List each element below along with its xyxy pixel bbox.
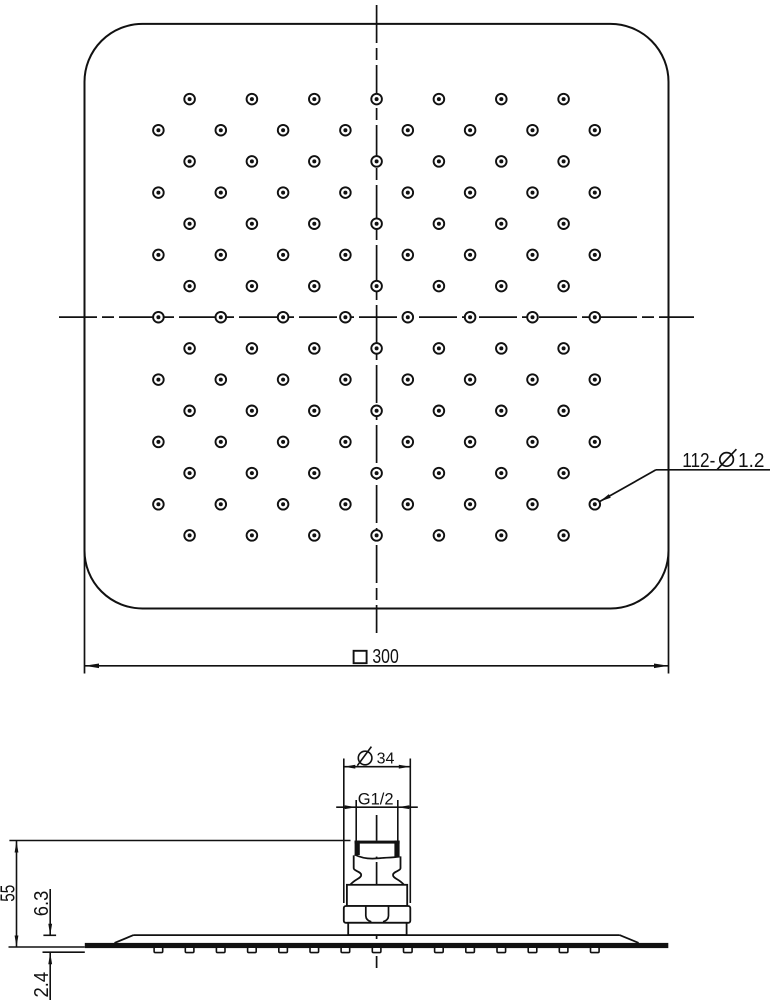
svg-text:112-: 112- — [682, 449, 715, 472]
svg-text:55: 55 — [0, 885, 19, 902]
svg-text:34: 34 — [377, 750, 395, 767]
svg-text:300: 300 — [372, 645, 398, 667]
svg-text:1.2: 1.2 — [738, 450, 764, 473]
svg-text:6.3: 6.3 — [31, 891, 53, 917]
svg-text:2.4: 2.4 — [31, 972, 53, 998]
svg-text:G1/2: G1/2 — [358, 790, 394, 808]
